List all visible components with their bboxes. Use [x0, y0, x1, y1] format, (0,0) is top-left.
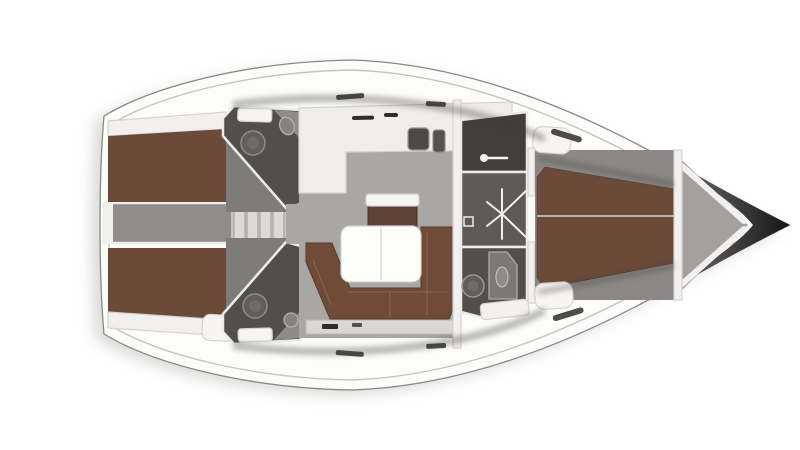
sideboard-top — [366, 194, 419, 206]
galley-stove — [433, 130, 445, 152]
sink — [284, 313, 298, 327]
double-berth — [108, 129, 226, 202]
counter-handle-2 — [384, 113, 398, 117]
shower-basin — [496, 267, 508, 287]
forward-cabin — [532, 126, 682, 310]
toilet-bowl — [249, 300, 261, 312]
bow-bulkhead — [674, 150, 682, 300]
forward-head — [461, 247, 529, 320]
toilet-bowl — [468, 281, 479, 292]
yacht-floorplan-canvas — [0, 0, 800, 450]
anchor-locker — [682, 160, 748, 290]
head-door — [238, 328, 272, 342]
yacht-floorplan — [0, 0, 800, 450]
fwd-cabin-wall-upper — [528, 148, 535, 196]
bow-section — [664, 156, 790, 294]
hatch-tick — [426, 343, 446, 349]
double-berth — [108, 248, 226, 320]
hatch-tick — [426, 101, 446, 107]
nav-band-tick-2 — [352, 323, 362, 327]
transom-door — [104, 203, 113, 243]
toilet-bowl — [247, 137, 259, 149]
fwd-cabin-wall-lower — [528, 242, 535, 303]
counter-handle-1 — [352, 116, 374, 120]
head-door — [238, 108, 272, 122]
galley-sink — [408, 128, 429, 150]
forward-passage — [461, 172, 529, 247]
nav-band-tick-1 — [322, 324, 338, 329]
salon-floor-entry — [286, 204, 300, 244]
passage-floor — [461, 172, 527, 247]
sideboard — [368, 204, 417, 226]
